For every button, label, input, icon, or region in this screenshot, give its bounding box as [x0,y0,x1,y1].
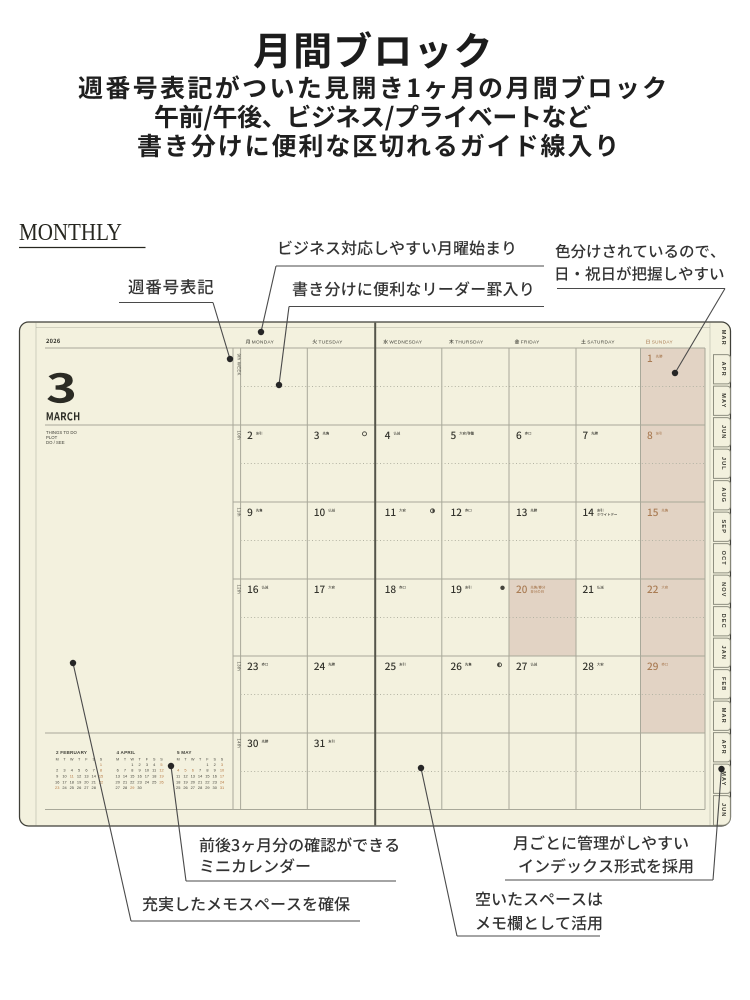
svg-text:5 MAY: 5 MAY [177,750,192,755]
svg-text:THURSDAY: THURSDAY [455,340,484,345]
svg-text:8: 8 [131,768,133,773]
svg-text:3: 3 [221,762,223,767]
svg-text:JAN: JAN [720,646,726,661]
svg-text:2: 2 [214,762,216,767]
svg-text:11: 11 [152,768,156,773]
svg-text:26: 26 [77,785,81,790]
svg-text:6: 6 [85,768,87,773]
svg-text:1: 1 [206,762,208,767]
svg-text:18: 18 [152,774,156,779]
svg-text:9: 9 [214,768,216,773]
svg-text:13: 13 [116,774,120,779]
svg-text:5: 5 [184,768,186,773]
svg-text:5: 5 [160,762,162,767]
svg-text:23: 23 [137,779,141,784]
svg-text:APR: APR [720,740,726,755]
svg-text:FEB: FEB [720,677,726,692]
svg-text:DO / SEE: DO / SEE [46,440,65,445]
svg-text:22: 22 [130,779,134,784]
svg-text:29: 29 [205,785,209,790]
svg-text:6: 6 [117,768,119,773]
svg-text:12: 12 [183,774,187,779]
svg-text:9: 9 [139,768,141,773]
svg-text:2 FEBRUARY: 2 FEBRUARY [56,750,87,755]
svg-text:15: 15 [99,774,103,779]
svg-text:28: 28 [198,785,202,790]
svg-text:17: 17 [145,774,149,779]
svg-text:17: 17 [220,774,224,779]
svg-text:M: M [116,758,119,762]
svg-text:22: 22 [205,779,209,784]
svg-text:SUNDAY: SUNDAY [652,340,674,345]
svg-text:1: 1 [100,762,102,767]
svg-text:26: 26 [159,779,163,784]
svg-text:18: 18 [70,779,74,784]
svg-text:9: 9 [56,774,58,779]
svg-text:4 APRIL: 4 APRIL [117,750,136,755]
svg-text:3: 3 [146,762,148,767]
svg-text:31: 31 [220,785,224,790]
svg-text:25: 25 [70,785,74,790]
svg-text:23: 23 [213,779,217,784]
svg-text:11: 11 [176,774,180,779]
svg-text:25: 25 [176,785,180,790]
svg-text:19: 19 [183,779,187,784]
svg-text:6: 6 [192,768,194,773]
svg-text:7: 7 [199,768,201,773]
svg-text:9th WEEK: 9th WEEK [236,354,241,376]
svg-text:26: 26 [183,785,187,790]
svg-text:12: 12 [159,768,163,773]
svg-text:14th: 14th [236,739,241,749]
svg-text:W: W [70,758,74,762]
svg-text:16: 16 [137,774,141,779]
svg-text:28: 28 [92,785,96,790]
svg-text:8: 8 [206,768,208,773]
svg-text:JUN: JUN [720,425,726,440]
svg-text:TUESDAY: TUESDAY [319,340,344,345]
svg-text:M: M [56,758,59,762]
svg-text:23: 23 [55,785,59,790]
svg-text:29: 29 [130,785,134,790]
svg-text:19: 19 [159,774,163,779]
svg-text:7: 7 [93,768,95,773]
svg-text:21: 21 [198,779,202,784]
svg-text:APR: APR [720,362,726,377]
svg-text:2: 2 [56,768,58,773]
svg-text:21: 21 [123,779,127,784]
svg-text:15: 15 [130,774,134,779]
svg-text:AUG: AUG [720,487,726,503]
svg-text:15: 15 [205,774,209,779]
svg-text:13th: 13th [236,662,241,672]
svg-text:OCT: OCT [720,551,726,566]
svg-text:WEDNESDAY: WEDNESDAY [389,340,423,345]
svg-text:11th: 11th [236,508,241,518]
svg-text:8: 8 [100,768,102,773]
svg-text:5: 5 [78,768,80,773]
svg-text:M: M [177,758,180,762]
svg-text:MAR: MAR [720,330,726,346]
svg-text:MONTHLY: MONTHLY [19,220,122,246]
svg-text:28: 28 [123,785,127,790]
svg-text:FRIDAY: FRIDAY [521,340,540,345]
svg-text:13: 13 [191,774,195,779]
svg-text:25: 25 [152,779,156,784]
svg-text:18: 18 [176,779,180,784]
svg-text:12: 12 [77,774,81,779]
svg-text:27: 27 [84,785,88,790]
svg-text:JUN: JUN [720,803,726,818]
svg-text:DEC: DEC [720,614,726,629]
svg-text:SATURDAY: SATURDAY [587,340,615,345]
svg-text:W: W [191,758,195,762]
svg-text:JUL: JUL [720,457,726,471]
svg-text:MONDAY: MONDAY [252,340,275,345]
svg-text:2: 2 [139,762,141,767]
svg-text:7: 7 [124,768,126,773]
svg-text:21: 21 [92,779,96,784]
svg-text:3: 3 [63,768,65,773]
svg-text:10th: 10th [236,431,241,441]
svg-text:12th: 12th [236,585,241,595]
svg-text:SEP: SEP [720,520,726,535]
svg-text:27: 27 [191,785,195,790]
svg-text:11: 11 [70,774,74,779]
svg-text:1: 1 [131,762,133,767]
svg-text:16: 16 [55,779,59,784]
svg-text:NOV: NOV [720,582,726,597]
svg-text:27: 27 [116,785,120,790]
svg-text:13: 13 [84,774,88,779]
svg-text:19: 19 [77,779,81,784]
svg-text:16: 16 [213,774,217,779]
svg-text:17: 17 [62,779,66,784]
svg-text:MAY: MAY [720,393,726,408]
svg-text:MAR: MAR [720,708,726,724]
